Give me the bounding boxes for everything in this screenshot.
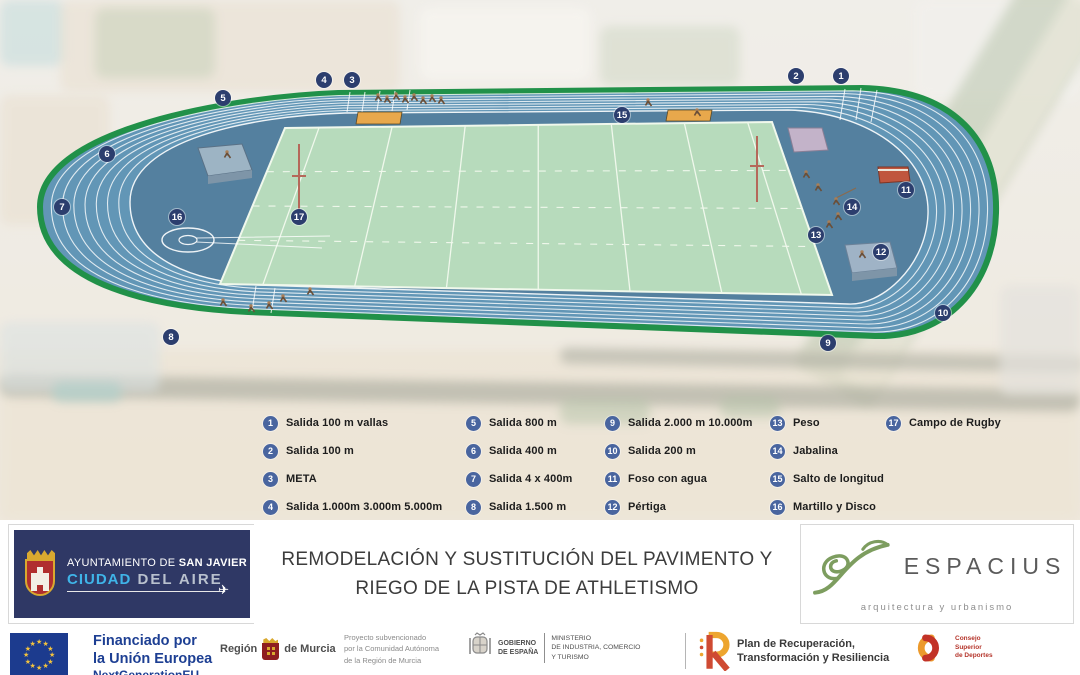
san-javier-logo: AYUNTAMIENTO DE SAN JAVIER CIUDAD DEL AI… xyxy=(14,530,250,618)
legend-number-badge: 4 xyxy=(263,500,278,515)
project-title-cell: REMODELACIÓN Y SUSTITUCIÓN DEL PAVIMENTO… xyxy=(254,520,800,628)
map-marker: 4 xyxy=(316,72,332,88)
csd-icon xyxy=(906,630,950,666)
san-javier-crest-icon xyxy=(24,550,58,598)
legend-column: 9Salida 2.000 m 10.000m10Salida 200 m11F… xyxy=(605,409,753,520)
murcia-word: de Murcia xyxy=(284,643,335,655)
prtr-line1: Plan de Recuperación, xyxy=(737,637,889,651)
legend-item: 12Pértiga xyxy=(605,493,753,520)
map-marker: 8 xyxy=(163,329,179,345)
map-marker: 5 xyxy=(215,90,231,106)
subsidy-note: Proyecto subvencionado por la Comunidad … xyxy=(344,632,439,666)
legend-number-badge: 12 xyxy=(605,500,620,515)
legend-item: 5Salida 800 m xyxy=(466,409,572,437)
logo-divider xyxy=(544,633,545,663)
municipality-name: AYUNTAMIENTO DE SAN JAVIER xyxy=(67,557,247,569)
eu-star-icon: ★ xyxy=(36,665,42,672)
region-word: Región xyxy=(220,643,257,655)
legend-number-badge: 11 xyxy=(605,472,620,487)
subsidy-line1: Proyecto subvencionado xyxy=(344,632,439,643)
legend-label: Salto de longitud xyxy=(793,473,884,485)
gobierno-line1: GOBIERNO xyxy=(498,639,538,648)
csd-text: Consejo Superior de Deportes xyxy=(955,635,993,661)
project-title-line1: REMODELACIÓN Y SUSTITUCIÓN DEL PAVIMENTO… xyxy=(281,546,772,573)
spain-coat-of-arms-icon xyxy=(468,632,492,664)
legend-label: Martillo y Disco xyxy=(793,501,876,513)
espacius-swirl-icon xyxy=(808,536,900,598)
map-marker: 15 xyxy=(614,107,630,123)
map-marker: 16 xyxy=(169,209,185,225)
gobierno-text: GOBIERNO DE ESPAÑA xyxy=(498,639,538,657)
project-poster: { "map": { "markers": [ {"n":"1","x":841… xyxy=(0,0,1080,675)
region-murcia-logo: Región de Murcia xyxy=(220,638,336,660)
map-marker: 17 xyxy=(291,209,307,225)
legend-item: 3META xyxy=(263,465,442,493)
water-jump xyxy=(788,128,828,152)
map-marker: 13 xyxy=(808,227,824,243)
legend-number-badge: 3 xyxy=(263,472,278,487)
eu-funding-text: Financiado por la Unión Europea NextGene… xyxy=(93,632,212,675)
shield-icon xyxy=(262,643,279,660)
legend-number-badge: 1 xyxy=(263,416,278,431)
legend-label: Salida 4 x 400m xyxy=(489,473,572,485)
legend-column: 5Salida 800 m6Salida 400 m7Salida 4 x 40… xyxy=(466,409,572,520)
legend-number-badge: 15 xyxy=(770,472,785,487)
murcia-crest-icon xyxy=(262,638,279,660)
legend-number-badge: 9 xyxy=(605,416,620,431)
municipality-logo-cell: AYUNTAMIENTO DE SAN JAVIER CIUDAD DEL AI… xyxy=(8,524,256,624)
aerial-photo-background: 1234567891011121314151617 1Salida 100 m … xyxy=(0,0,1080,520)
gobierno-line2: DE ESPAÑA xyxy=(498,648,538,657)
legend-item: 14Jabalina xyxy=(770,437,884,465)
eu-star-icon: ★ xyxy=(36,639,42,646)
legend-column: 17Campo de Rugby xyxy=(886,409,1001,437)
map-marker: 10 xyxy=(935,305,951,321)
eu-star-icon: ★ xyxy=(30,641,36,648)
eu-star-icon: ★ xyxy=(25,659,31,666)
legend-column: 13Peso14Jabalina15Salto de longitud16Mar… xyxy=(770,409,884,520)
legend-number-badge: 14 xyxy=(770,444,785,459)
map-marker: 2 xyxy=(788,68,804,84)
legend-item: 13Peso xyxy=(770,409,884,437)
legend-item: 8Salida 1.500 m xyxy=(466,493,572,520)
espacius-logo-row: ESPACIUS xyxy=(808,536,1067,598)
legend-label: Salida 100 m xyxy=(286,445,354,457)
legend-number-badge: 13 xyxy=(770,416,785,431)
pole-vault-mat xyxy=(845,242,897,273)
map-marker: 14 xyxy=(844,199,860,215)
csd-logo: Consejo Superior de Deportes xyxy=(906,630,993,666)
csd-line1: Consejo xyxy=(955,635,993,644)
subsidy-line3: de la Región de Murcia xyxy=(344,655,439,666)
footer-divider xyxy=(685,633,686,669)
map-marker: 12 xyxy=(873,244,889,260)
map-marker: 1 xyxy=(833,68,849,84)
legend: 1Salida 100 m vallas2Salida 100 m3META4S… xyxy=(0,409,1080,520)
map-marker: 7 xyxy=(54,199,70,215)
map-marker: 11 xyxy=(898,182,914,198)
recovery-plan-logo: Plan de Recuperación, Transformación y R… xyxy=(698,631,889,671)
legend-number-badge: 10 xyxy=(605,444,620,459)
legend-label: META xyxy=(286,473,317,485)
legend-label: Salida 200 m xyxy=(628,445,696,457)
csd-line2: Superior xyxy=(955,644,993,653)
legend-label: Foso con agua xyxy=(628,473,707,485)
legend-item: 1Salida 100 m vallas xyxy=(263,409,442,437)
ministerio-text: MINISTERIO DE INDUSTRIA, COMERCIO Y TURI… xyxy=(551,634,640,662)
legend-item: 4Salida 1.000m 3.000m 5.000m xyxy=(263,493,442,520)
municipality-text: AYUNTAMIENTO DE SAN JAVIER CIUDAD DEL AI… xyxy=(67,557,247,592)
legend-label: Peso xyxy=(793,417,820,429)
legend-label: Salida 400 m xyxy=(489,445,557,457)
legend-number-badge: 16 xyxy=(770,500,785,515)
eu-star-icon: ★ xyxy=(23,652,29,659)
legend-item: 2Salida 100 m xyxy=(263,437,442,465)
legend-number-badge: 5 xyxy=(466,416,481,431)
crown-icon xyxy=(27,550,55,559)
espacius-name: ESPACIUS xyxy=(904,553,1067,580)
legend-label: Salida 2.000 m 10.000m xyxy=(628,417,753,429)
prtr-line2: Transformación y Resiliencia xyxy=(737,651,889,665)
long-jump-pit xyxy=(356,112,402,124)
legend-number-badge: 6 xyxy=(466,444,481,459)
legend-number-badge: 17 xyxy=(886,416,901,431)
shield-icon xyxy=(25,559,55,596)
eu-next-generation: NextGenerationEU xyxy=(93,668,212,675)
plane-icon: ✈ xyxy=(218,583,229,598)
legend-item: 11Foso con agua xyxy=(605,465,753,493)
espacius-tagline: arquitectura y urbanismo xyxy=(861,602,1014,613)
subsidy-line2: por la Comunidad Autónoma xyxy=(344,643,439,654)
eu-flag-icon: ★★★★★★★★★★★★ xyxy=(10,633,68,675)
eu-funding-line1: Financiado por xyxy=(93,632,212,650)
prtr-text: Plan de Recuperación, Transformación y R… xyxy=(737,637,889,666)
eu-funding-line2: la Unión Europea xyxy=(93,650,212,668)
legend-column: 1Salida 100 m vallas2Salida 100 m3META4S… xyxy=(263,409,442,520)
legend-label: Campo de Rugby xyxy=(909,417,1001,429)
legend-item: 16Martillo y Disco xyxy=(770,493,884,520)
plane-trail-line: ✈ xyxy=(67,591,225,592)
legend-number-badge: 2 xyxy=(263,444,278,459)
eu-star-icon: ★ xyxy=(43,663,49,670)
title-banner: AYUNTAMIENTO DE SAN JAVIER CIUDAD DEL AI… xyxy=(0,520,1080,629)
legend-label: Jabalina xyxy=(793,445,838,457)
map-marker: 3 xyxy=(344,72,360,88)
legend-item: 17Campo de Rugby xyxy=(886,409,1001,437)
ministerio-line3: Y TURISMO xyxy=(551,653,640,662)
legend-item: 7Salida 4 x 400m xyxy=(466,465,572,493)
legend-label: Pértiga xyxy=(628,501,666,513)
map-marker: 9 xyxy=(820,335,836,351)
espacius-logo: ESPACIUS arquitectura y urbanismo xyxy=(801,525,1073,623)
ministerio-line1: MINISTERIO xyxy=(551,634,640,643)
gobierno-espana-logo: GOBIERNO DE ESPAÑA MINISTERIO DE INDUSTR… xyxy=(468,632,640,664)
legend-number-badge: 8 xyxy=(466,500,481,515)
prtr-r-icon xyxy=(698,631,730,671)
legend-label: Salida 100 m vallas xyxy=(286,417,388,429)
legend-label: Salida 1.000m 3.000m 5.000m xyxy=(286,501,442,513)
csd-line3: de Deportes xyxy=(955,652,993,661)
project-title-line2: RIEGO DE LA PISTA DE ATHLETISMO xyxy=(355,575,698,602)
legend-item: 6Salida 400 m xyxy=(466,437,572,465)
long-jump-pit xyxy=(666,110,712,121)
legend-label: Salida 800 m xyxy=(489,417,557,429)
funding-footer: ★★★★★★★★★★★★ Financiado por la Unión Eur… xyxy=(0,628,1080,675)
studio-logo-cell: ESPACIUS arquitectura y urbanismo xyxy=(800,524,1074,624)
legend-item: 9Salida 2.000 m 10.000m xyxy=(605,409,753,437)
map-marker: 6 xyxy=(99,146,115,162)
legend-label: Salida 1.500 m xyxy=(489,501,566,513)
legend-number-badge: 7 xyxy=(466,472,481,487)
legend-item: 10Salida 200 m xyxy=(605,437,753,465)
ministerio-line2: DE INDUSTRIA, COMERCIO xyxy=(551,643,640,652)
legend-item: 15Salto de longitud xyxy=(770,465,884,493)
